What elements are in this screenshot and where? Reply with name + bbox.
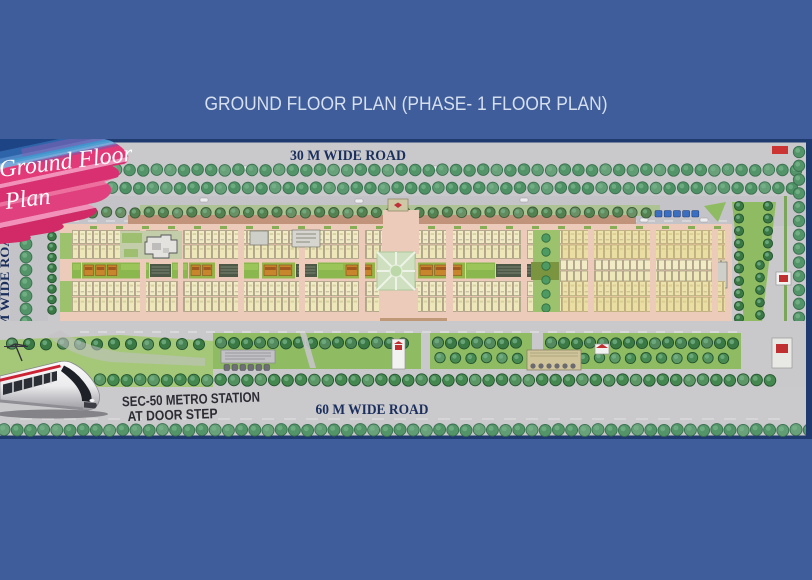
svg-text:30 M WIDE ROAD: 30 M WIDE ROAD (290, 148, 406, 164)
svg-text:AT DOOR STEP: AT DOOR STEP (127, 405, 218, 424)
svg-text:GROUND FLOOR PLAN (PHASE- 1 FL: GROUND FLOOR PLAN (PHASE- 1 FLOOR PLAN) (205, 94, 608, 115)
svg-text:60 M WIDE ROAD: 60 M WIDE ROAD (316, 402, 429, 418)
